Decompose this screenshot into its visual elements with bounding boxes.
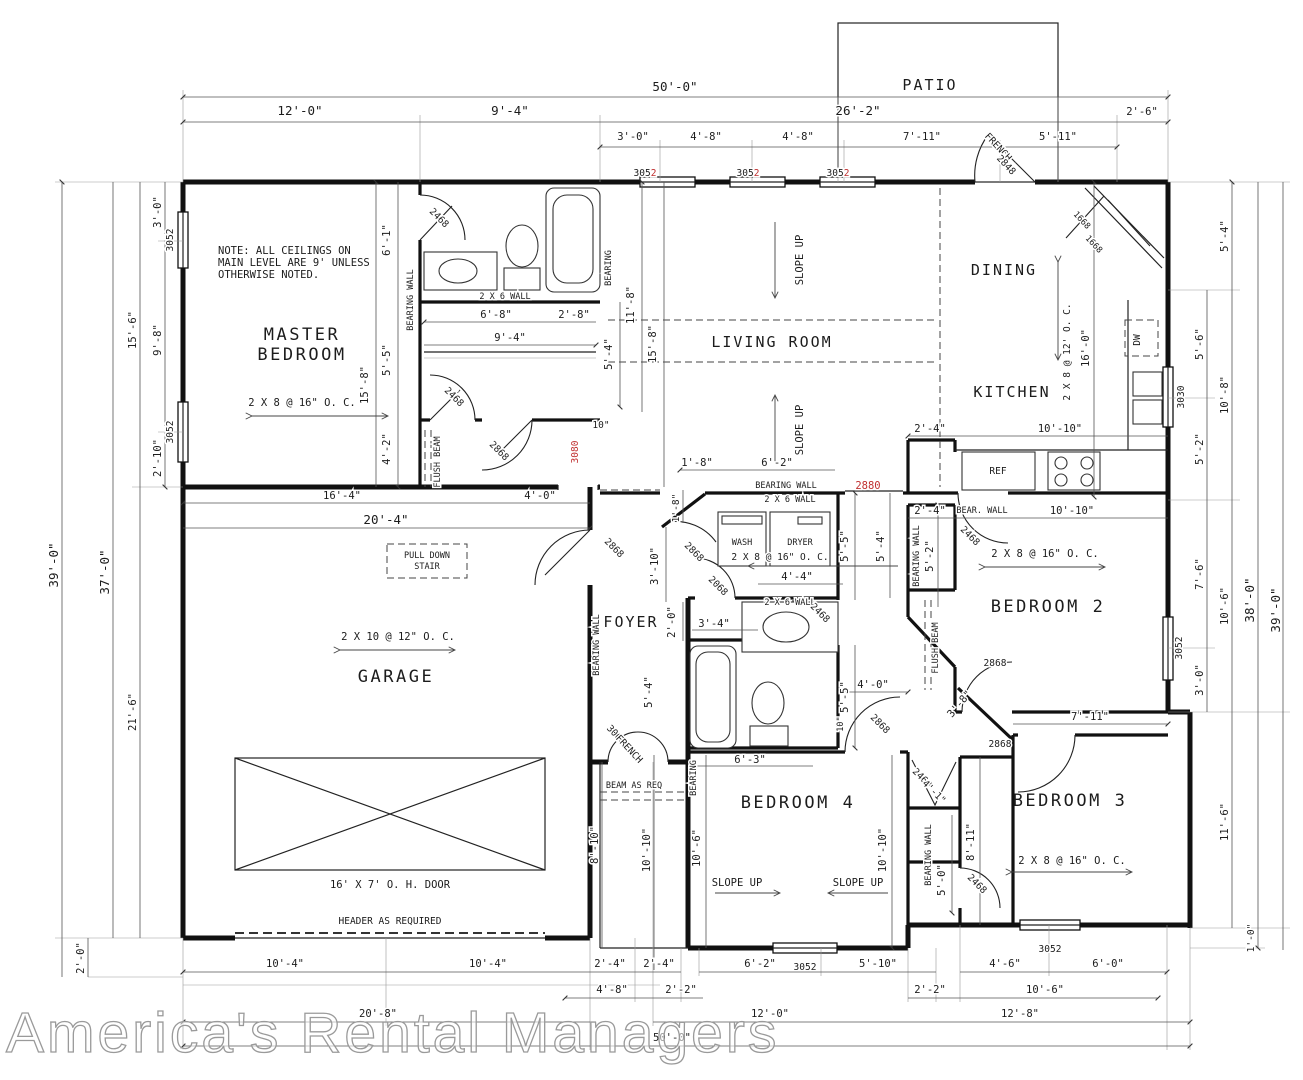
dim-label: 2'-4" bbox=[914, 505, 946, 517]
window-tag: 3052 bbox=[737, 168, 760, 179]
dim-label: 4'-8" bbox=[596, 984, 628, 996]
door-tag: 2868 bbox=[602, 536, 626, 560]
dim-label: 10'-6" bbox=[691, 829, 703, 867]
ceiling-note-line3: OTHERWISE NOTED. bbox=[218, 269, 319, 281]
dim-label: 50'-0" bbox=[652, 79, 697, 94]
dim-label: 2'-2" bbox=[665, 984, 697, 996]
wall-note: BEARING bbox=[689, 760, 699, 796]
garage-door-note: 16' X 7' O. H. DOOR bbox=[330, 879, 451, 891]
dim-label: 4'-0" bbox=[857, 679, 889, 691]
appliance-label-wash: WASH bbox=[732, 538, 752, 548]
dim-label: 10'-4" bbox=[469, 958, 507, 970]
dim-label: 10" bbox=[836, 716, 846, 731]
dim-label: 5'-2" bbox=[1194, 433, 1206, 465]
dim-label: 12'-0" bbox=[277, 103, 322, 118]
dim-label: 9'-4" bbox=[491, 103, 529, 118]
wall-note: 2 X 6 WALL bbox=[764, 495, 815, 505]
dim-label: 10'-6" bbox=[1026, 984, 1064, 996]
dim-label: 4'-0" bbox=[524, 490, 556, 502]
dim-label: 8'-11" bbox=[965, 823, 977, 861]
window-tag: 3030 bbox=[1176, 385, 1187, 408]
joist-spec: 2 X 10 @ 12" O. C. bbox=[341, 631, 455, 643]
room-label-patio: PATIO bbox=[902, 76, 957, 94]
room-label-bedroom4: BEDROOM 4 bbox=[741, 793, 856, 813]
ceiling-note-line1: NOTE: ALL CEILINGS ON bbox=[218, 245, 351, 257]
extension-lines bbox=[55, 90, 1290, 1050]
dim-label: 5'-2" bbox=[924, 540, 936, 572]
door-tag: 2468 bbox=[958, 524, 982, 548]
appliance-label-ref: REF bbox=[989, 466, 1006, 477]
dim-label: 4'-4" bbox=[781, 571, 813, 583]
joist-spec: 2 X 8 @ 12' O. C. bbox=[1062, 303, 1073, 400]
dim-label: 5'-0" bbox=[936, 864, 948, 896]
dim-label: 6'-8" bbox=[480, 309, 512, 321]
opening-tag: 3080 bbox=[570, 440, 581, 463]
dim-label: 6'-2" bbox=[744, 958, 776, 970]
slope-note: SLOPE UP bbox=[794, 405, 806, 456]
dim-label: 37'-0" bbox=[97, 549, 112, 594]
dim-label: 10'-10" bbox=[641, 828, 653, 872]
dim-label: 10'-10" bbox=[1050, 505, 1094, 517]
dim-label: 6'-3" bbox=[734, 754, 766, 766]
dim-label: 7'-11" bbox=[903, 131, 941, 143]
room-label-garage: GARAGE bbox=[358, 667, 434, 687]
dim-label: 5'-11" bbox=[1039, 131, 1077, 143]
dim-label: 5'-5" bbox=[839, 681, 851, 713]
door-tag: 2868 bbox=[682, 540, 706, 564]
opening-tag: 2880 bbox=[855, 480, 880, 492]
room-label-kitchen: KITCHEN bbox=[973, 383, 1050, 401]
dim-label: 2'-0" bbox=[666, 606, 678, 638]
slope-note: SLOPE UP bbox=[833, 877, 884, 889]
dim-label: 2'-4" bbox=[914, 423, 946, 435]
room-label-bedroom2: BEDROOM 2 bbox=[991, 597, 1106, 617]
dim-label: 10'-8" bbox=[1219, 376, 1231, 414]
ceiling-note-line2: MAIN LEVEL ARE 9' UNLESS bbox=[218, 257, 370, 269]
dim-label: 39'-0" bbox=[46, 542, 61, 587]
dim-label: 8'-10" bbox=[589, 826, 601, 864]
dimension-lines bbox=[62, 97, 1283, 1046]
wall-note: BEARING WALL bbox=[406, 269, 416, 330]
window-tag: 3052 bbox=[165, 421, 176, 444]
watermark: America's Rental Managers bbox=[6, 1001, 779, 1065]
dim-label: 2'-6" bbox=[1126, 106, 1158, 118]
ceiling-dashes bbox=[425, 188, 940, 690]
room-label-master: MASTER bbox=[264, 325, 340, 345]
dim-label: 6'-1" bbox=[381, 224, 393, 256]
wall-note: 2 X 6 WALL bbox=[479, 292, 530, 302]
door-tag: 2468 bbox=[965, 872, 989, 896]
dim-label: 10'-10" bbox=[877, 828, 889, 872]
window-tag: 3052 bbox=[634, 168, 657, 179]
window-tag: 3052 bbox=[1039, 944, 1062, 955]
dim-label: 9'-8" bbox=[152, 324, 164, 356]
slope-note: SLOPE UP bbox=[794, 235, 806, 286]
dim-label: 9'-4" bbox=[494, 332, 526, 344]
dim-label: 39'-0" bbox=[1268, 587, 1283, 632]
dim-label: 5'-4" bbox=[603, 338, 615, 370]
dim-label: 3'-4" bbox=[698, 618, 730, 630]
dim-label: 12'-8" bbox=[1001, 1008, 1039, 1020]
stair-note-2: STAIR bbox=[414, 562, 440, 572]
door-tag: 2468 bbox=[427, 206, 451, 230]
wall-note: BEARING WALL bbox=[592, 614, 602, 675]
floor-plan: 50'-0" 12'-0" 9'-4" 26'-2" 2'-6" 3'-0" 4… bbox=[0, 0, 1303, 1080]
door-tag: 2068 bbox=[706, 574, 730, 598]
room-label-dining: DINING bbox=[971, 261, 1037, 279]
dim-label: 4'-6" bbox=[989, 958, 1021, 970]
dim-label: 5'-5" bbox=[839, 530, 851, 562]
dim-label: 4'-8" bbox=[690, 131, 722, 143]
wall-note: BEARING WALL bbox=[924, 824, 934, 885]
dim-label: 2'-8" bbox=[558, 309, 590, 321]
dim-label: 6'-2" bbox=[761, 457, 793, 469]
wall-note: BEARING WALL bbox=[755, 481, 816, 491]
window-tag: 3052 bbox=[1174, 637, 1185, 660]
beam-note: FLUSH BEAM bbox=[931, 622, 941, 673]
dim-label: 7'-6" bbox=[1194, 558, 1206, 590]
dim-label: 3'-10" bbox=[649, 547, 661, 585]
wall-note: 2 X 6 WALL bbox=[764, 598, 815, 608]
appliance-label-dryer: DRYER bbox=[787, 538, 813, 548]
dim-label: 38'-0" bbox=[1242, 577, 1257, 622]
window-tag: 3052 bbox=[165, 229, 176, 252]
wall-note: BEAR. WALL bbox=[956, 506, 1007, 516]
room-label-living: LIVING ROOM bbox=[711, 333, 832, 351]
stair-note-1: PULL DOWN bbox=[404, 551, 450, 561]
dim-label: 2'-2" bbox=[914, 984, 946, 996]
room-label-bedroom3: BEDROOM 3 bbox=[1013, 791, 1128, 811]
door-tag-french: FRENCH bbox=[613, 733, 645, 766]
dim-label: 4'-2" bbox=[381, 433, 393, 465]
dim-label: 5'-10" bbox=[859, 958, 897, 970]
dim-label: 15'-8" bbox=[647, 325, 659, 363]
dim-label: 15'-6" bbox=[127, 311, 139, 349]
dim-label: 5'-4" bbox=[1219, 220, 1231, 252]
dim-label: 4'-8" bbox=[782, 131, 814, 143]
dim-label: 2'-4" bbox=[643, 958, 675, 970]
dim-label: 26'-2" bbox=[835, 103, 880, 118]
door-tag: 2868 bbox=[984, 658, 1007, 669]
exterior-walls bbox=[183, 182, 1190, 948]
dim-label: 3'-0" bbox=[1194, 664, 1206, 696]
dim-label: 16'-4" bbox=[323, 490, 361, 502]
wall-note: BEARING bbox=[604, 250, 614, 286]
dim-label: 6'-0" bbox=[1092, 958, 1124, 970]
labels: 50'-0" 12'-0" 9'-4" 26'-2" 2'-6" 3'-0" 4… bbox=[46, 76, 1283, 1044]
beam-note: BEAM AS REQ bbox=[606, 781, 662, 791]
slope-note: SLOPE UP bbox=[712, 877, 763, 889]
joist-spec: 2 X 8 @ 16" O. C. bbox=[991, 548, 1098, 560]
joist-spec: 2 X 8 @ 16" O. C. bbox=[731, 552, 828, 563]
window-tag: 3052 bbox=[794, 962, 817, 973]
window-tag: 3052 bbox=[827, 168, 850, 179]
dim-label: 1'-8" bbox=[671, 494, 682, 523]
dim-label: 3'-0" bbox=[617, 131, 649, 143]
dim-label: 10'-10" bbox=[1038, 423, 1082, 435]
dim-label: 16'-0" bbox=[1080, 329, 1092, 367]
room-label-master2: BEDROOM bbox=[257, 345, 346, 365]
dim-label: 11'-8" bbox=[625, 286, 637, 324]
dim-label: 2'-4" bbox=[594, 958, 626, 970]
wall-note: BEARING WALL bbox=[912, 525, 922, 586]
dim-label: 10" bbox=[592, 420, 609, 431]
door-tag: 1668 bbox=[1083, 234, 1104, 256]
door-tag: 2868 bbox=[487, 439, 511, 463]
dim-label: 2'-10" bbox=[152, 439, 164, 477]
dim-label: 5'-6" bbox=[1194, 328, 1206, 360]
dim-label: 5'-4" bbox=[643, 676, 655, 708]
joist-spec: 2 X 8 @ 16" O. C. bbox=[248, 397, 355, 409]
dim-label: 11'-6" bbox=[1219, 803, 1231, 841]
appliance-label-dw: DW bbox=[1132, 334, 1143, 346]
dim-label: 15'-8" bbox=[359, 366, 371, 404]
door-tag: 2868 bbox=[989, 739, 1012, 750]
dim-label: 1'-0" bbox=[1246, 924, 1257, 953]
door-tag: 2848 bbox=[994, 153, 1018, 177]
dim-label: 3'-0" bbox=[152, 196, 164, 228]
door-tag: 2868 bbox=[868, 712, 892, 736]
header-note: HEADER AS REQUIRED bbox=[339, 916, 442, 927]
dim-label: 20'-4" bbox=[363, 512, 408, 527]
dim-label: 21'-6" bbox=[127, 693, 139, 731]
beam-note: FLUSH BEAM bbox=[433, 436, 443, 487]
dim-label: 10'-4" bbox=[266, 958, 304, 970]
dim-label: 10'-6" bbox=[1219, 587, 1231, 625]
joist-spec: 2 X 8 @ 16" O. C. bbox=[1018, 855, 1125, 867]
dim-label: 5'-4" bbox=[875, 530, 887, 562]
dim-label: 1'-8" bbox=[681, 457, 713, 469]
dim-label: 2'-0" bbox=[75, 942, 87, 974]
dim-label: 3'-8" bbox=[945, 688, 975, 720]
room-label-foyer: FOYER bbox=[603, 613, 658, 631]
dim-label: 5'-5" bbox=[381, 344, 393, 376]
dim-label: 7'-11" bbox=[1071, 711, 1109, 723]
